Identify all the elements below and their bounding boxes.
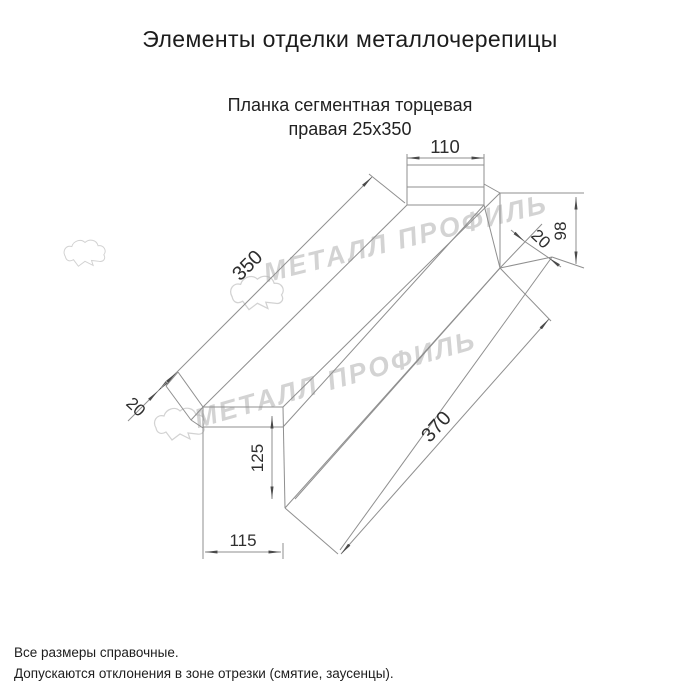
footer-note-line1: Все размеры справочные. <box>14 645 179 660</box>
dim-label-end-height: 125 <box>248 444 267 472</box>
dim-label-top-width: 110 <box>430 136 460 157</box>
watermark-text-upper: МЕТАЛЛ ПРОФИЛЬ <box>261 188 552 288</box>
catalog-page: Элементы отделки металлочерепицы Планка … <box>0 0 700 700</box>
dim-label-bottom-length: 370 <box>417 407 456 447</box>
dim-label-end-width: 115 <box>229 531 256 550</box>
technical-drawing: МЕТАЛЛ ПРОФИЛЬ МЕТАЛЛ ПРОФИЛЬ <box>0 0 700 700</box>
footer-note-line2: Допускаются отклонения в зоне отрезки (с… <box>14 666 394 681</box>
dim-label-length: 350 <box>228 246 267 285</box>
dim-label-left-fold: 20 <box>122 394 149 421</box>
